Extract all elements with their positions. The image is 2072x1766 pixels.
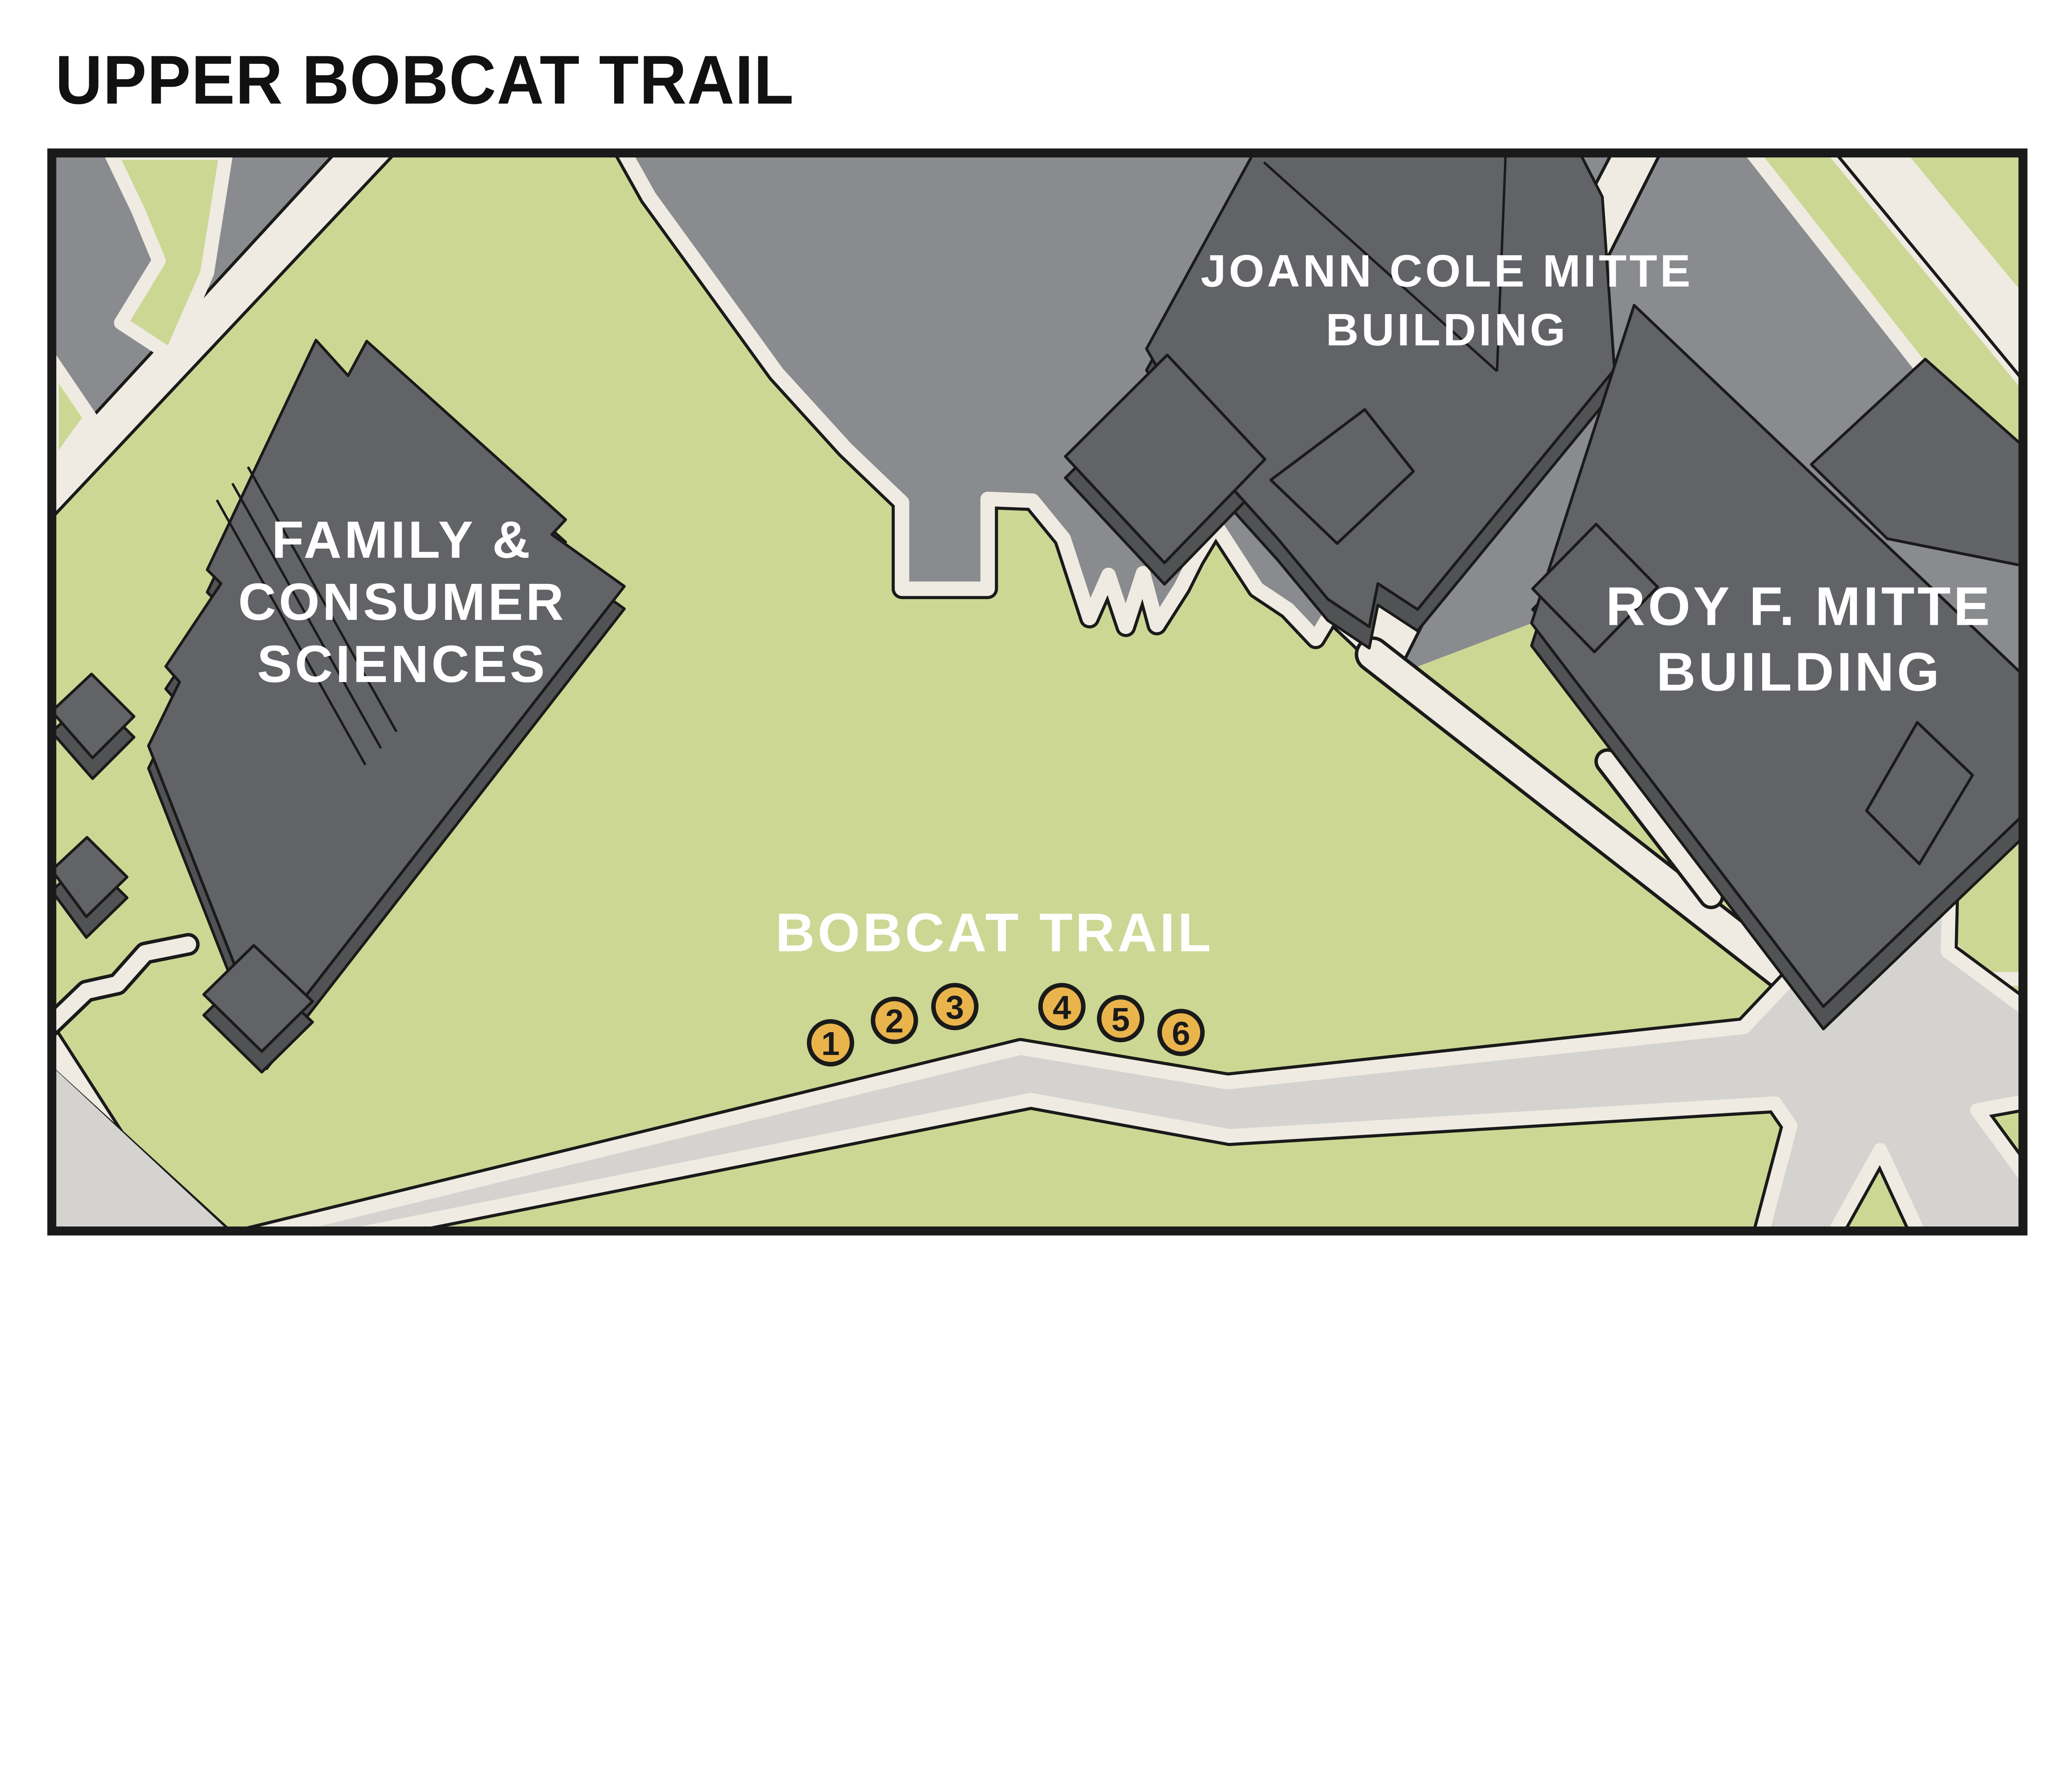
marker-3-number: 3	[946, 989, 964, 1026]
label-rfm-line1: ROY F. MITTE	[1606, 576, 1992, 636]
label-bobcat-trail: BOBCAT TRAIL	[775, 902, 1214, 963]
label-jcm-line2: BUILDING	[1326, 304, 1568, 355]
page: UPPER BOBCAT TRAIL	[0, 0, 2072, 1472]
marker-4-number: 4	[1053, 989, 1071, 1026]
label-fcs: FAMILY & CONSUMER SCIENCES	[238, 510, 566, 693]
campus-map: UPPER BOBCAT TRAIL	[0, 0, 2072, 1472]
trail-marker-5: 5	[1099, 997, 1142, 1040]
trail-marker-6: 6	[1159, 1011, 1202, 1054]
marker-2-number: 2	[885, 1003, 903, 1040]
label-fcs-line1: FAMILY &	[272, 510, 533, 569]
label-fcs-line2: CONSUMER	[238, 572, 566, 631]
label-fcs-line3: SCIENCES	[257, 634, 547, 693]
marker-5-number: 5	[1111, 1001, 1130, 1038]
label-jcm-line1: JOANN COLE MITTE	[1201, 246, 1693, 297]
trail-marker-2: 2	[873, 999, 916, 1042]
page-title: UPPER BOBCAT TRAIL	[55, 41, 794, 119]
marker-6-number: 6	[1172, 1015, 1190, 1052]
marker-1-number: 1	[821, 1025, 840, 1062]
trail-marker-1: 1	[809, 1021, 852, 1064]
trail-marker-4: 4	[1041, 985, 1083, 1028]
label-rfm-line2: BUILDING	[1656, 641, 1942, 702]
trail-marker-3: 3	[934, 985, 976, 1028]
